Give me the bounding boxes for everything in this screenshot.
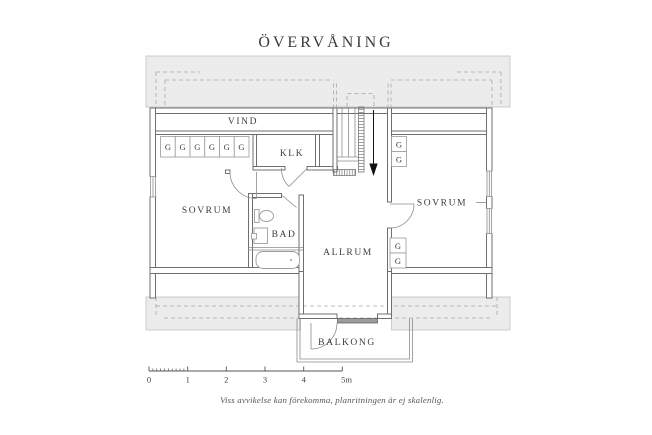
sink-icon xyxy=(252,228,268,244)
balcony-door-sill xyxy=(338,319,378,324)
room-label-bad: BAD xyxy=(272,230,297,240)
wardrobe-label: G xyxy=(224,142,230,152)
wardrobe-label: G xyxy=(396,140,402,150)
room-label-balkong: BALKONG xyxy=(318,338,376,348)
room-label-vind: VIND xyxy=(228,117,258,127)
wardrobe-pairs-right: G G G G xyxy=(390,137,407,269)
wardrobe-label: G xyxy=(395,256,401,266)
page-title: ÖVERVÅNING xyxy=(258,33,393,51)
wardrobe-label: G xyxy=(194,142,200,152)
scale-tick-label: 0 xyxy=(147,375,151,385)
floor-plan-canvas: ÖVERVÅNING xyxy=(0,0,652,435)
wardrobe-label: G xyxy=(238,142,244,152)
wardrobe-row-left: G G G G G G xyxy=(161,137,250,158)
wardrobe-label: G xyxy=(396,155,402,165)
top-roof-band xyxy=(146,56,510,107)
scale-bar: 0 1 2 3 4 5m xyxy=(147,367,352,385)
window-right-upper xyxy=(486,171,493,197)
stairs-down-arrow-icon xyxy=(369,110,377,176)
bathtub-icon xyxy=(256,252,300,269)
wardrobe-label: G xyxy=(395,241,401,251)
room-label-allrum: ALLRUM xyxy=(323,248,373,258)
wardrobe-label: G xyxy=(180,142,186,152)
scale-tick-label: 2 xyxy=(224,375,228,385)
klk-door xyxy=(281,168,307,187)
scale-tick-label: 4 xyxy=(302,375,307,385)
scale-tick-label: 1 xyxy=(186,375,190,385)
bad-door xyxy=(282,196,297,208)
disclaimer-text: Viss avvikelse kan förekomma, planritnin… xyxy=(220,395,444,405)
room-label-sovrum-left: SOVRUM xyxy=(182,206,232,216)
sovrum-right-door xyxy=(390,204,414,228)
wardrobe-label: G xyxy=(165,142,171,152)
scale-tick-label: 3 xyxy=(263,375,267,385)
floor-plan-page: ÖVERVÅNING xyxy=(0,0,652,435)
scale-tick-label: 5m xyxy=(341,375,352,385)
room-label-sovrum-right: SOVRUM xyxy=(417,199,467,209)
toilet-icon xyxy=(255,210,274,223)
staircase xyxy=(334,107,378,176)
room-label-klk: KLK xyxy=(280,149,304,159)
wardrobe-label: G xyxy=(209,142,215,152)
window-left xyxy=(150,177,157,198)
